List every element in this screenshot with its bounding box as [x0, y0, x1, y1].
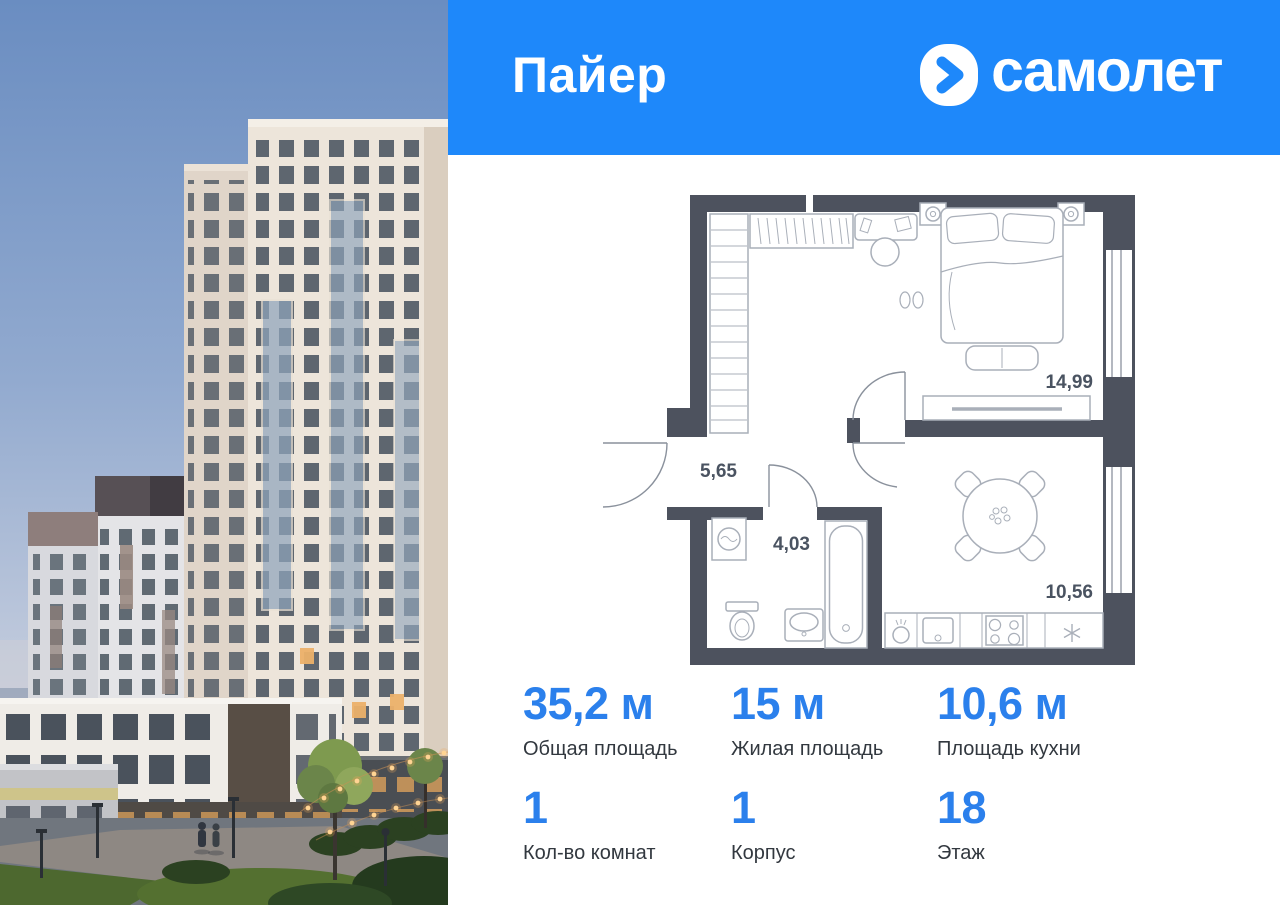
building-photo	[0, 0, 448, 905]
desk-chair	[871, 238, 899, 266]
stat-value: 35,2 м	[523, 681, 753, 726]
stat-label: Этаж	[937, 842, 1167, 865]
stat-label: Жилая площадь	[731, 738, 961, 761]
washing-machine	[712, 518, 746, 560]
wardrobe-top	[750, 214, 853, 248]
stat-value: 15 м	[731, 681, 961, 726]
stat-label: Площадь кухни	[937, 738, 1167, 761]
wardrobe-left	[710, 214, 748, 433]
samolet-logo-icon	[920, 44, 978, 106]
room-area-living: 14,99	[1045, 372, 1093, 393]
building-photo-graphic	[0, 0, 448, 905]
listing-card: Пайер самолет	[0, 0, 1280, 905]
kitchen-faucet	[893, 627, 909, 643]
stat-kitchen-area: 10,6 м Площадь кухни	[937, 681, 1167, 761]
stat-label: Кол-во комнат	[523, 842, 753, 865]
bathtub	[825, 521, 867, 648]
desk	[855, 214, 917, 266]
stat-rooms-count: 1 Кол-во комнат	[523, 785, 753, 865]
bed	[941, 208, 1063, 343]
room-area-hallway: 5,65	[700, 461, 737, 482]
toilet	[726, 602, 758, 640]
stat-value: 1	[523, 785, 753, 830]
floor-plan: 14,99 5,65 4,03 10,56	[600, 190, 1140, 670]
stat-label: Общая площадь	[523, 738, 753, 761]
stat-building: 1 Корпус	[731, 785, 961, 865]
slippers	[900, 292, 923, 308]
stat-label: Корпус	[731, 842, 961, 865]
header-bar: Пайер самолет	[448, 0, 1280, 155]
listing-details-panel: Пайер самолет	[448, 0, 1280, 905]
stat-value: 10,6 м	[937, 681, 1167, 726]
room-area-bathroom: 4,03	[773, 534, 810, 555]
bathroom-sink	[785, 609, 823, 641]
tv-console	[923, 396, 1090, 420]
stove	[986, 616, 1023, 645]
stat-total-area: 35,2 м Общая площадь	[523, 681, 753, 761]
dining-table	[963, 479, 1037, 553]
stat-floor: 18 Этаж	[937, 785, 1167, 865]
kitchen-counter	[885, 613, 1103, 648]
brand-logo: самолет	[920, 42, 1222, 107]
project-title: Пайер	[512, 46, 667, 104]
stat-value: 1	[731, 785, 961, 830]
brand-name: самолет	[991, 42, 1222, 107]
stat-value: 18	[937, 785, 1167, 830]
room-area-kitchen: 10,56	[1045, 582, 1093, 603]
stat-living-area: 15 м Жилая площадь	[731, 681, 961, 761]
